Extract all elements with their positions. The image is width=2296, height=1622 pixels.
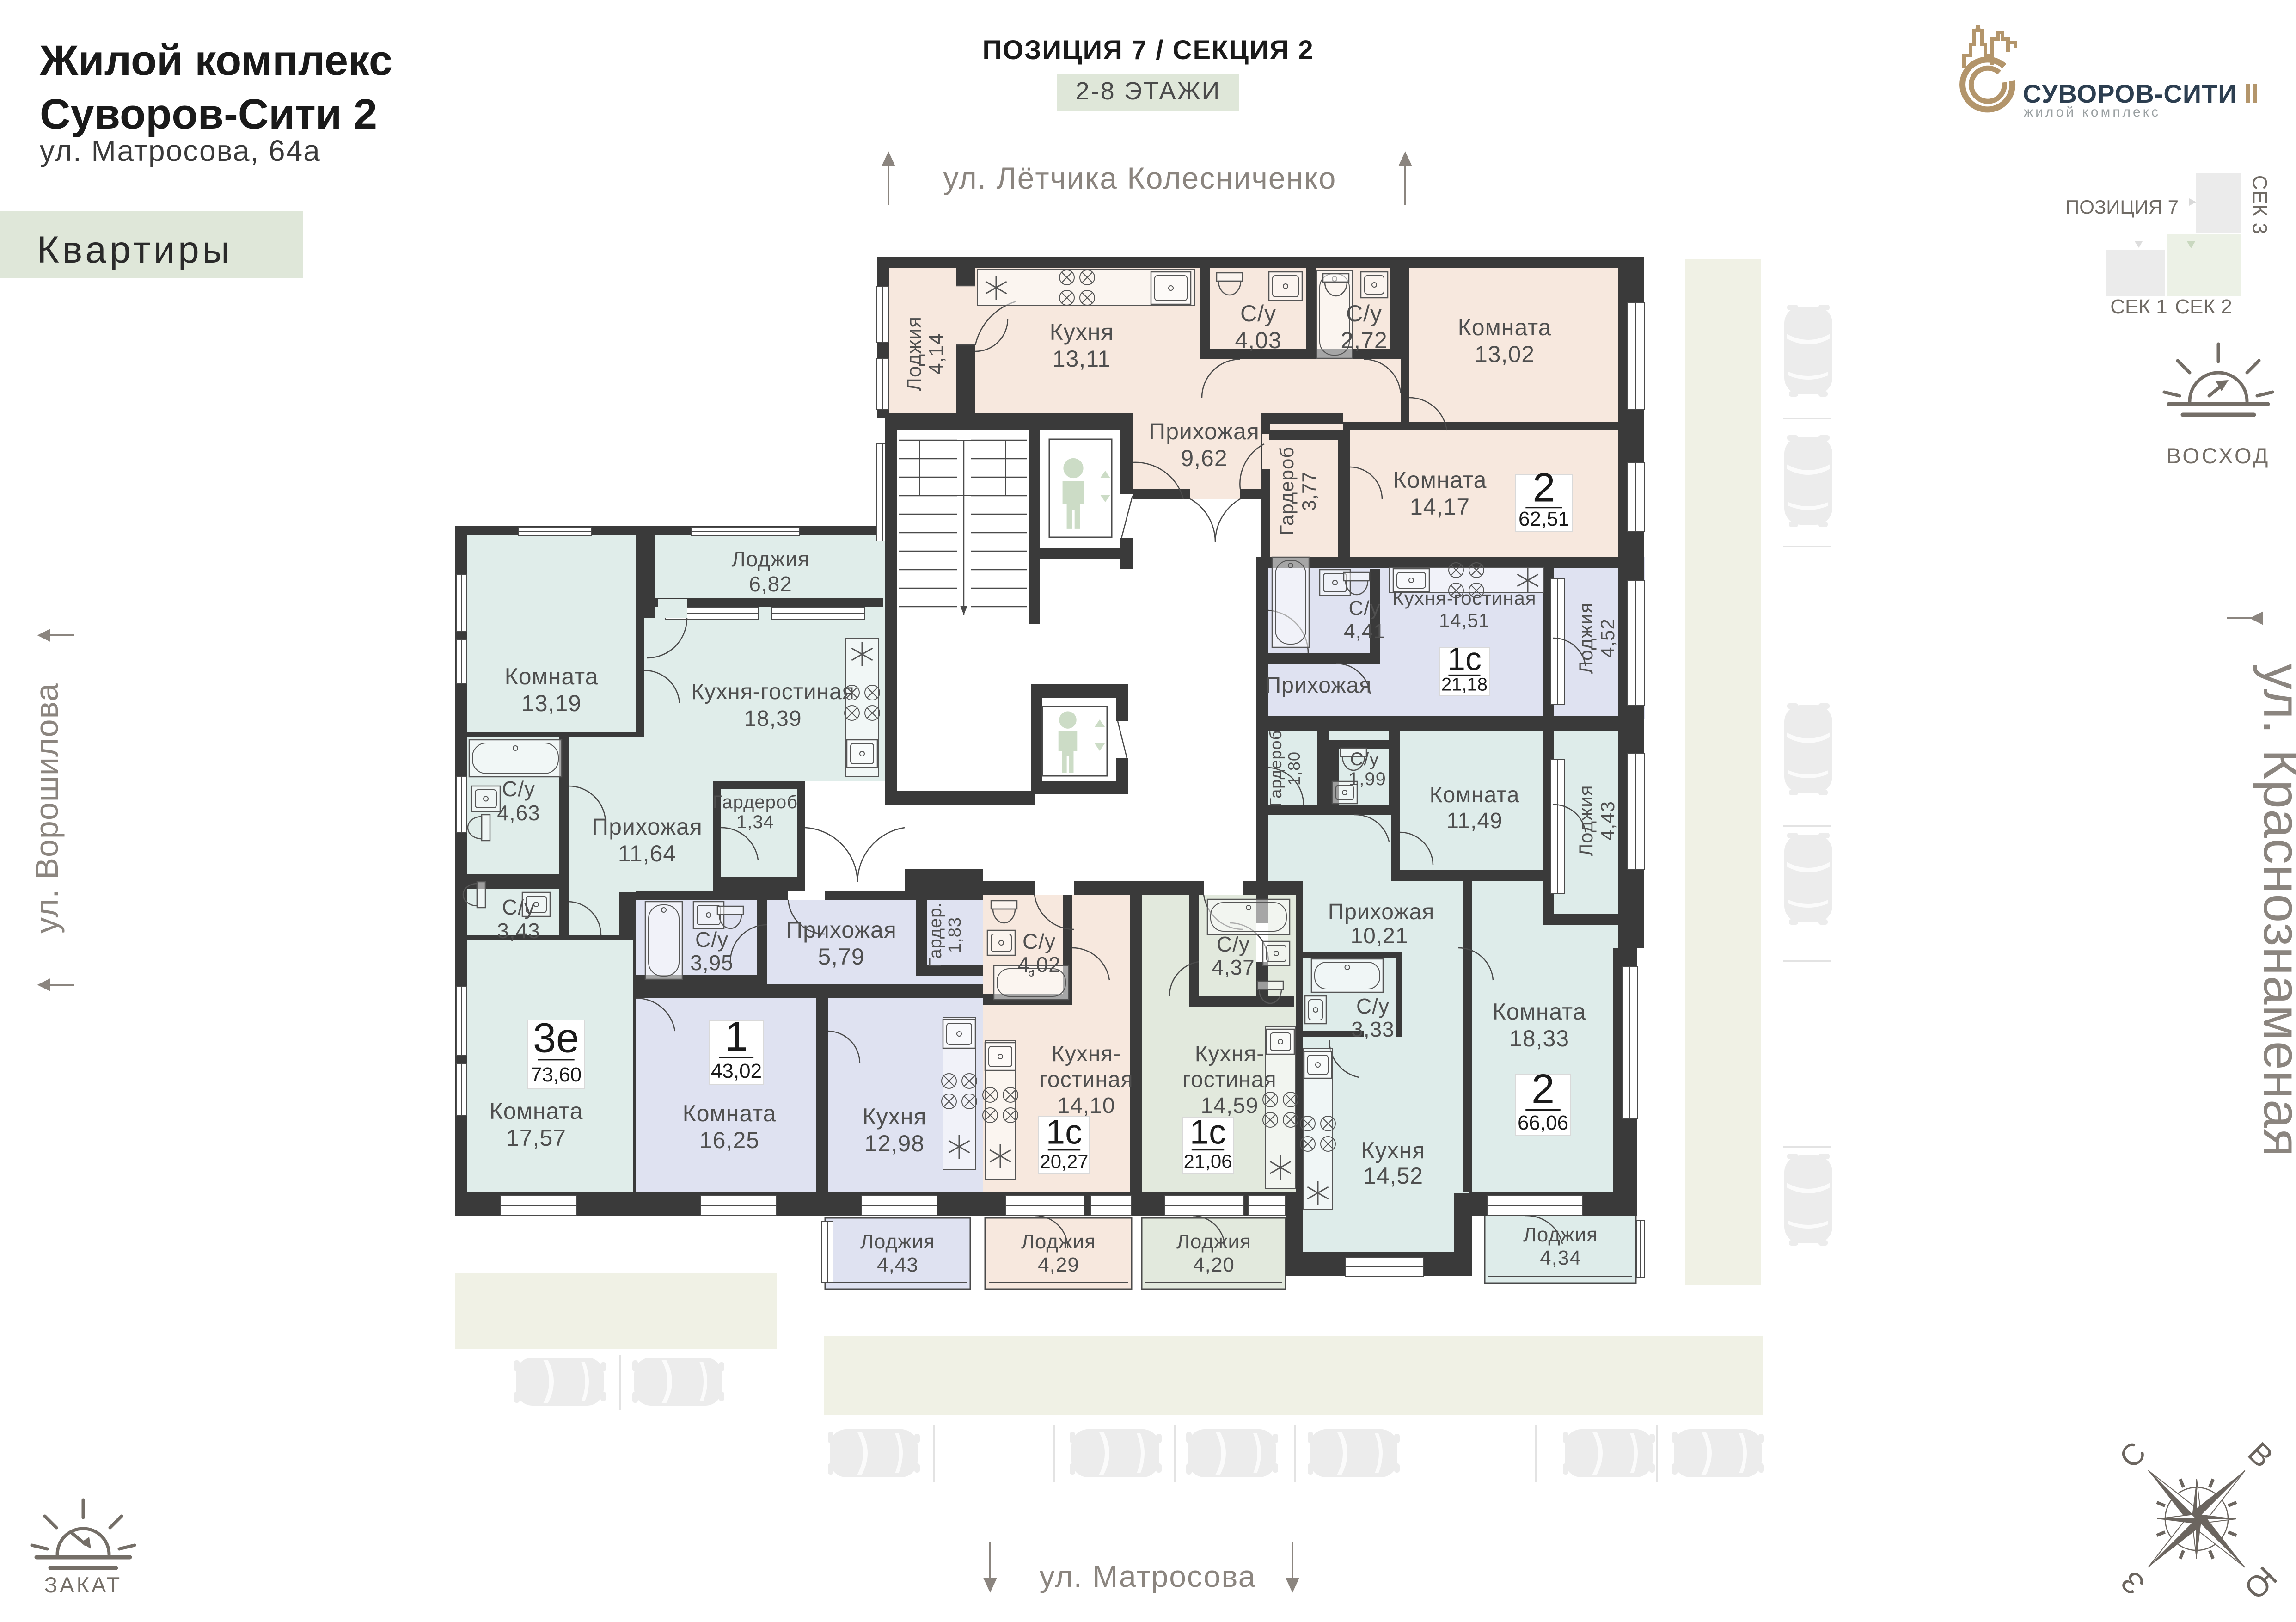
svg-text:4,20: 4,20 — [1193, 1253, 1235, 1276]
svg-text:1,99: 1,99 — [1348, 769, 1386, 789]
svg-text:Прихожая: Прихожая — [592, 814, 703, 840]
svg-text:гостиная: гостиная — [1182, 1068, 1276, 1092]
svg-text:жилой комплекс: жилой комплекс — [2024, 104, 2161, 120]
svg-text:4,02: 4,02 — [1017, 952, 1061, 977]
svg-text:Гардероб: Гардероб — [1276, 447, 1298, 536]
svg-text:Кухня-гостиная: Кухня-гостиная — [1392, 587, 1536, 609]
svg-text:Кухня-гостиная: Кухня-гостиная — [691, 680, 855, 704]
svg-text:1,83: 1,83 — [945, 917, 965, 953]
svg-text:Комната: Комната — [1493, 999, 1586, 1025]
svg-text:ул. Матросова: ул. Матросова — [1040, 1559, 1256, 1593]
svg-text:5,79: 5,79 — [818, 944, 864, 970]
svg-text:СУВОРОВ-СИТИ: СУВОРОВ-СИТИ — [2023, 79, 2237, 108]
svg-text:Гардероб: Гардероб — [713, 792, 798, 812]
svg-text:73,60: 73,60 — [531, 1063, 582, 1086]
svg-text:Лоджия: Лоджия — [1575, 785, 1597, 857]
svg-text:21,06: 21,06 — [1183, 1150, 1232, 1172]
svg-text:Лоджия: Лоджия — [903, 316, 925, 391]
svg-text:Комната: Комната — [1393, 467, 1487, 493]
svg-text:13,02: 13,02 — [1475, 341, 1535, 367]
svg-text:4,41: 4,41 — [1344, 620, 1385, 643]
svg-text:11,49: 11,49 — [1446, 809, 1503, 833]
svg-text:1,34: 1,34 — [736, 812, 774, 832]
svg-text:4,34: 4,34 — [1540, 1247, 1581, 1269]
svg-text:17,57: 17,57 — [506, 1125, 566, 1151]
svg-text:С/у: С/у — [502, 895, 535, 919]
svg-text:Жилой комплекс: Жилой комплекс — [39, 37, 392, 84]
svg-text:ул. Краснознаменая: ул. Краснознаменая — [2253, 664, 2296, 1157]
svg-text:ПОЗИЦИЯ 7: ПОЗИЦИЯ 7 — [2065, 196, 2179, 218]
svg-text:СЕК 3: СЕК 3 — [2248, 175, 2271, 234]
svg-text:14,52: 14,52 — [1363, 1163, 1423, 1189]
svg-text:Комната: Комната — [1458, 314, 1552, 340]
svg-text:СЕК 1: СЕК 1 — [2110, 295, 2167, 318]
svg-text:Лоджия: Лоджия — [1523, 1223, 1598, 1246]
svg-text:4,52: 4,52 — [1597, 618, 1618, 658]
svg-text:3е: 3е — [533, 1015, 579, 1062]
svg-text:13,19: 13,19 — [521, 690, 582, 716]
svg-text:4,43: 4,43 — [1597, 801, 1618, 841]
svg-text:Кухня: Кухня — [1361, 1137, 1426, 1163]
svg-text:43,02: 43,02 — [711, 1060, 762, 1082]
svg-text:2: 2 — [1533, 464, 1555, 510]
svg-text:ВОСХОД: ВОСХОД — [2167, 443, 2271, 468]
svg-text:Лоджия: Лоджия — [1575, 602, 1597, 674]
svg-text:Кухня: Кухня — [1050, 319, 1114, 345]
svg-text:14,51: 14,51 — [1439, 609, 1490, 631]
svg-text:С/у: С/у — [1240, 301, 1276, 326]
svg-text:2: 2 — [1531, 1066, 1555, 1112]
svg-text:Квартиры: Квартиры — [37, 229, 233, 271]
svg-text:С/у: С/у — [1346, 301, 1382, 326]
svg-text:Прихожая: Прихожая — [786, 917, 897, 943]
svg-text:Кухня: Кухня — [863, 1104, 927, 1130]
svg-text:2,72: 2,72 — [1341, 327, 1387, 353]
svg-text:62,51: 62,51 — [1518, 508, 1569, 530]
svg-text:Комната: Комната — [505, 664, 599, 689]
svg-text:3,33: 3,33 — [1351, 1017, 1395, 1041]
svg-text:1,80: 1,80 — [1285, 751, 1304, 786]
svg-text:4,37: 4,37 — [1212, 955, 1255, 979]
svg-text:Прихожая: Прихожая — [1328, 900, 1434, 924]
svg-text:Лоджия: Лоджия — [732, 547, 810, 571]
svg-text:14,17: 14,17 — [1410, 494, 1470, 520]
svg-text:ул. Ворошилова: ул. Ворошилова — [29, 683, 65, 934]
svg-text:9,62: 9,62 — [1181, 445, 1227, 471]
svg-text:4,29: 4,29 — [1038, 1253, 1079, 1276]
svg-text:Суворов-Сити 2: Суворов-Сити 2 — [40, 91, 377, 138]
svg-text:12,98: 12,98 — [864, 1130, 925, 1156]
svg-text:С/у: С/у — [695, 928, 729, 952]
svg-text:С/у: С/у — [1350, 749, 1379, 769]
svg-text:6,82: 6,82 — [749, 572, 792, 596]
svg-text:Комната: Комната — [1430, 783, 1520, 807]
svg-text:1: 1 — [725, 1014, 748, 1060]
svg-text:4,14: 4,14 — [925, 333, 948, 375]
svg-text:1с: 1с — [1046, 1112, 1082, 1151]
svg-text:С/у: С/у — [1356, 994, 1390, 1018]
svg-text:Лоджия: Лоджия — [860, 1230, 935, 1253]
svg-text:С/у: С/у — [1217, 932, 1250, 956]
svg-text:16,25: 16,25 — [699, 1127, 759, 1153]
svg-text:Гардер.: Гардер. — [926, 902, 945, 968]
svg-text:Комната: Комната — [490, 1098, 583, 1124]
svg-text:13,11: 13,11 — [1053, 346, 1111, 372]
svg-text:2-8 ЭТАЖИ: 2-8 ЭТАЖИ — [1076, 77, 1221, 105]
svg-text:4,03: 4,03 — [1235, 327, 1281, 353]
svg-text:Прихожая: Прихожая — [1265, 673, 1371, 698]
svg-text:3,77: 3,77 — [1298, 471, 1320, 511]
svg-text:21,18: 21,18 — [1441, 675, 1488, 695]
svg-text:ПОЗИЦИЯ 7 / СЕКЦИЯ 2: ПОЗИЦИЯ 7 / СЕКЦИЯ 2 — [982, 35, 1314, 65]
svg-text:С/у: С/у — [502, 777, 535, 801]
svg-text:1с: 1с — [1447, 641, 1482, 677]
svg-text:Кухня-: Кухня- — [1195, 1042, 1264, 1066]
svg-text:4,43: 4,43 — [877, 1253, 918, 1276]
svg-text:Лоджия: Лоджия — [1176, 1230, 1251, 1253]
svg-text:Кухня-: Кухня- — [1052, 1042, 1121, 1066]
svg-text:гостиная: гостиная — [1039, 1068, 1133, 1092]
svg-text:18,33: 18,33 — [1509, 1026, 1569, 1051]
svg-text:Лоджия: Лоджия — [1021, 1230, 1096, 1253]
svg-text:20,27: 20,27 — [1040, 1151, 1088, 1173]
svg-text:10,21: 10,21 — [1350, 924, 1408, 948]
svg-text:С/у: С/у — [1349, 597, 1381, 620]
svg-text:Гардероб: Гардероб — [1266, 730, 1285, 807]
svg-text:ул. Матросова, 64а: ул. Матросова, 64а — [40, 134, 321, 167]
svg-text:С/у: С/у — [1022, 929, 1056, 953]
svg-text:3,95: 3,95 — [690, 951, 734, 975]
svg-text:СЕК 2: СЕК 2 — [2175, 295, 2232, 318]
svg-text:ЗАКАТ: ЗАКАТ — [44, 1573, 122, 1597]
svg-text:Прихожая: Прихожая — [1149, 418, 1260, 444]
svg-text:18,39: 18,39 — [744, 707, 802, 731]
svg-text:4,63: 4,63 — [497, 801, 540, 825]
svg-text:ул. Лётчика Колесниченко: ул. Лётчика Колесниченко — [943, 161, 1337, 195]
svg-text:11,64: 11,64 — [618, 841, 676, 866]
svg-text:Комната: Комната — [683, 1100, 777, 1126]
svg-text:66,06: 66,06 — [1518, 1112, 1568, 1134]
svg-text:1с: 1с — [1190, 1112, 1226, 1151]
svg-text:3,43: 3,43 — [497, 919, 540, 943]
